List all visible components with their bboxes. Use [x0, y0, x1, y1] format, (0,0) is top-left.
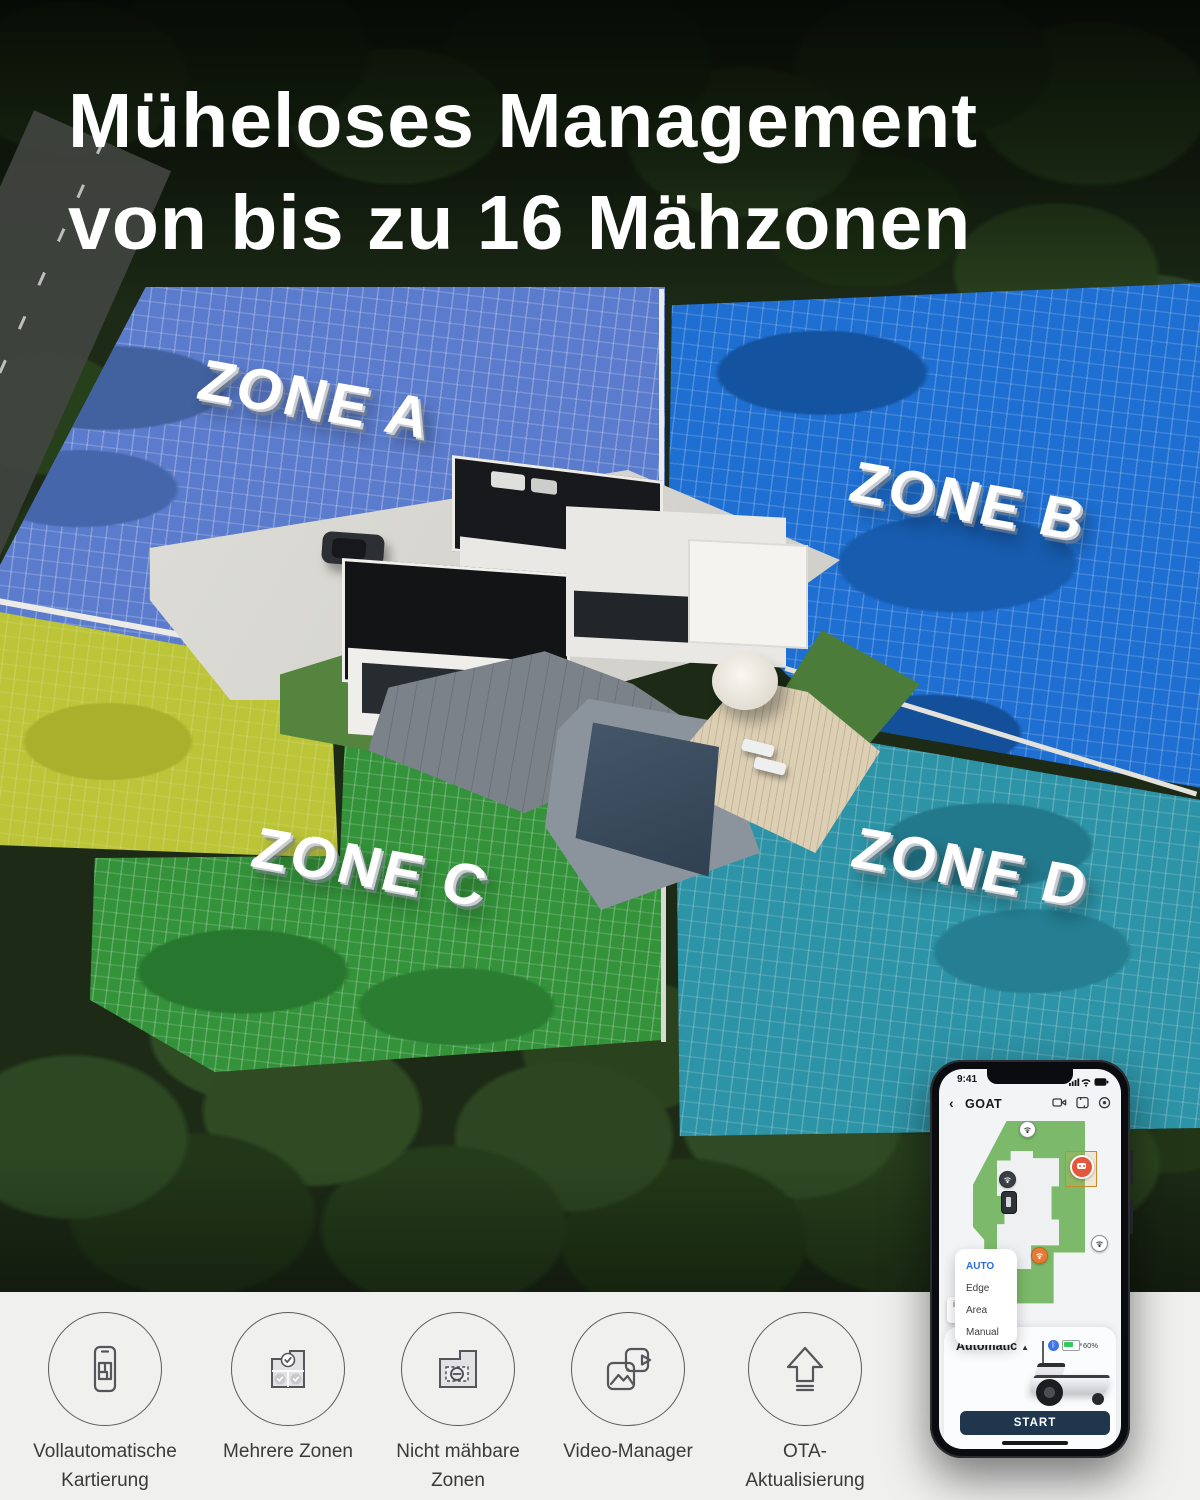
phone-side-button	[1130, 1150, 1133, 1184]
title-line-1: Müheloses Management	[68, 70, 978, 172]
feature-circle	[571, 1312, 685, 1426]
app-header: ‹ GOAT	[939, 1093, 1121, 1117]
signal-wifi-battery-icons	[1069, 1077, 1109, 1087]
mower-rear-wheel	[1092, 1393, 1104, 1405]
feature-no-mow-zones: Nicht mähbare Zonen	[363, 1312, 553, 1495]
feature-ota-update: OTA- Aktualisierung	[710, 1312, 900, 1495]
map-icon[interactable]	[1076, 1096, 1089, 1109]
beacon-icon[interactable]	[1019, 1121, 1036, 1138]
bottom-control-panel: Automatic▲ ᛒ 60% START	[944, 1327, 1116, 1449]
mower-front-wheel	[1036, 1379, 1063, 1406]
title-line-2: von bis zu 16 Mähzonen	[68, 172, 978, 274]
feature-multiple-zones: Mehrere Zonen	[193, 1312, 383, 1467]
robot-icon	[1070, 1155, 1094, 1179]
station-beacon-icon[interactable]	[999, 1171, 1016, 1188]
dropdown-option-area[interactable]: Area	[966, 1300, 1017, 1322]
battery-icon	[1062, 1340, 1080, 1351]
phone-notch	[987, 1069, 1073, 1084]
ota-update-icon	[777, 1341, 833, 1397]
feature-label: OTA- Aktualisierung	[710, 1438, 900, 1495]
settings-icon[interactable]	[1098, 1096, 1111, 1109]
house-canopy	[688, 539, 808, 649]
dropdown-option-edge[interactable]: Edge	[966, 1278, 1017, 1300]
robot-status: ᛒ 60%	[1048, 1340, 1098, 1351]
robot-mower-image	[1028, 1355, 1114, 1409]
feature-label: Video-Manager	[533, 1438, 723, 1467]
app-title: GOAT	[965, 1097, 1002, 1111]
patio-umbrella	[712, 652, 778, 710]
charging-station-icon[interactable]	[1001, 1191, 1017, 1214]
phone-mockup: 9:41 ‹ GOAT	[930, 1060, 1130, 1458]
product-infographic: Müheloses Management von bis zu 16 Mähzo…	[0, 0, 1200, 1500]
back-button[interactable]: ‹	[949, 1095, 954, 1111]
rooftop-unit	[491, 471, 525, 491]
dropdown-option-manual[interactable]: Manual	[966, 1322, 1017, 1344]
robot-position-marker[interactable]	[1065, 1151, 1097, 1187]
battery-percent: 60%	[1083, 1341, 1098, 1350]
feature-circle	[401, 1312, 515, 1426]
status-time: 9:41	[957, 1074, 977, 1085]
bluetooth-icon: ᛒ	[1048, 1340, 1059, 1351]
video-manager-icon	[600, 1341, 656, 1397]
beacon-icon[interactable]	[1091, 1235, 1108, 1252]
start-button[interactable]: START	[960, 1411, 1110, 1435]
feature-circle	[231, 1312, 345, 1426]
charging-dock-icon[interactable]	[1031, 1247, 1048, 1264]
page-title: Müheloses Management von bis zu 16 Mähzo…	[68, 70, 978, 275]
app-screen: 9:41 ‹ GOAT	[939, 1069, 1121, 1449]
status-icons	[1069, 1074, 1109, 1092]
feature-video-manager: Video-Manager	[533, 1312, 723, 1467]
feature-circle	[48, 1312, 162, 1426]
caret-up-icon: ▲	[1021, 1343, 1029, 1352]
feature-automatic-mapping: Vollautomatische Kartierung	[10, 1312, 200, 1495]
feature-label: Vollautomatische Kartierung	[10, 1438, 200, 1495]
dropdown-option-auto[interactable]: AUTO	[966, 1256, 1017, 1278]
feature-label: Nicht mähbare Zonen	[363, 1438, 553, 1495]
phone-side-button	[1130, 1200, 1133, 1234]
feature-circle	[748, 1312, 862, 1426]
phone-map-icon	[77, 1341, 133, 1397]
home-indicator	[1002, 1441, 1068, 1445]
no-mow-zone-icon	[430, 1341, 486, 1397]
video-call-icon[interactable]	[1052, 1096, 1067, 1109]
rooftop-unit	[531, 478, 557, 495]
mode-dropdown: AUTO Edge Area Manual	[955, 1249, 1017, 1345]
multi-zone-icon	[260, 1341, 316, 1397]
feature-label: Mehrere Zonen	[193, 1438, 383, 1467]
